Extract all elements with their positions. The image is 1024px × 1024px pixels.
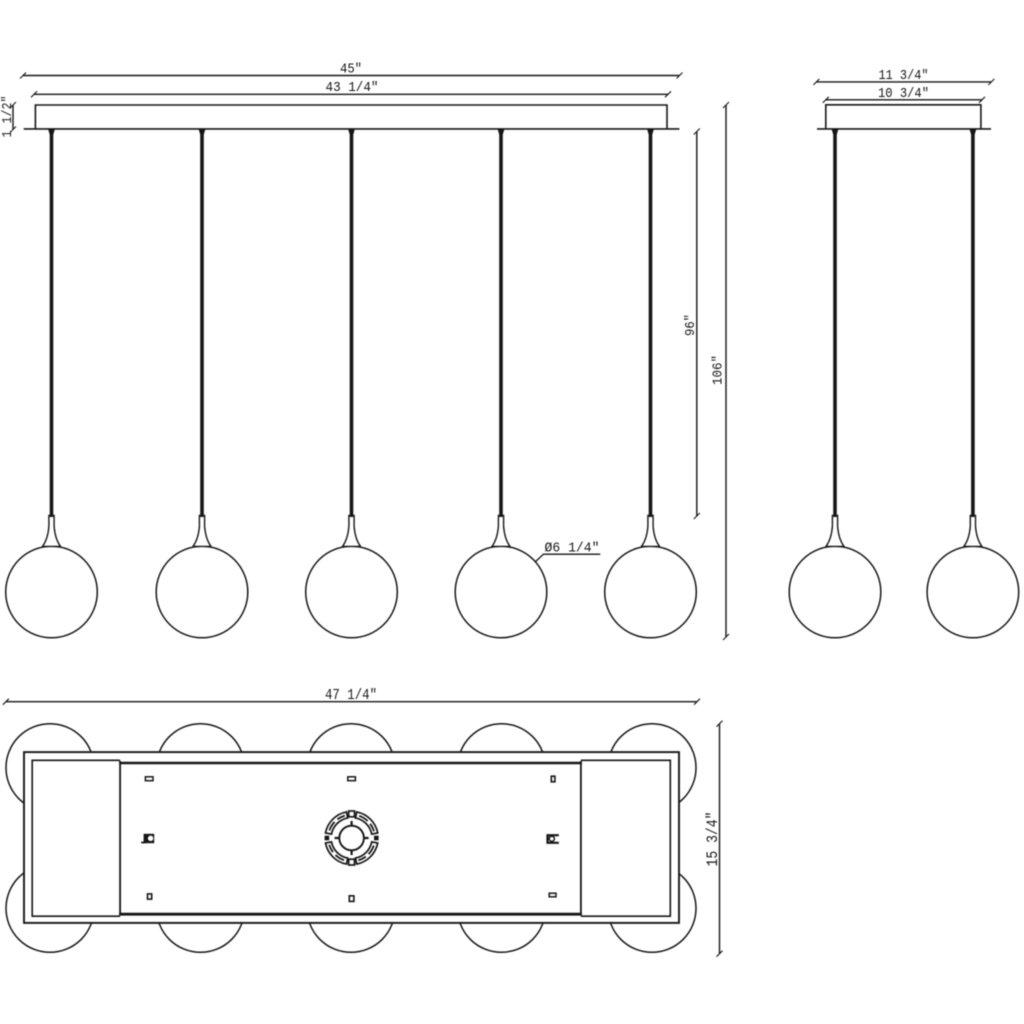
svg-text:10 3/4": 10 3/4" — [878, 87, 929, 102]
svg-text:45": 45" — [340, 63, 362, 78]
svg-text:43 1/4": 43 1/4" — [326, 81, 379, 96]
svg-text:1 1/2": 1 1/2" — [1, 96, 16, 138]
svg-text:96": 96" — [683, 314, 699, 336]
svg-text:47 1/4": 47 1/4" — [325, 688, 377, 704]
svg-text:15 3/4": 15 3/4" — [704, 812, 722, 867]
svg-text:Ø6 1/4": Ø6 1/4" — [545, 541, 600, 556]
svg-text:106": 106" — [711, 355, 727, 385]
svg-text:11 3/4": 11 3/4" — [879, 69, 929, 84]
